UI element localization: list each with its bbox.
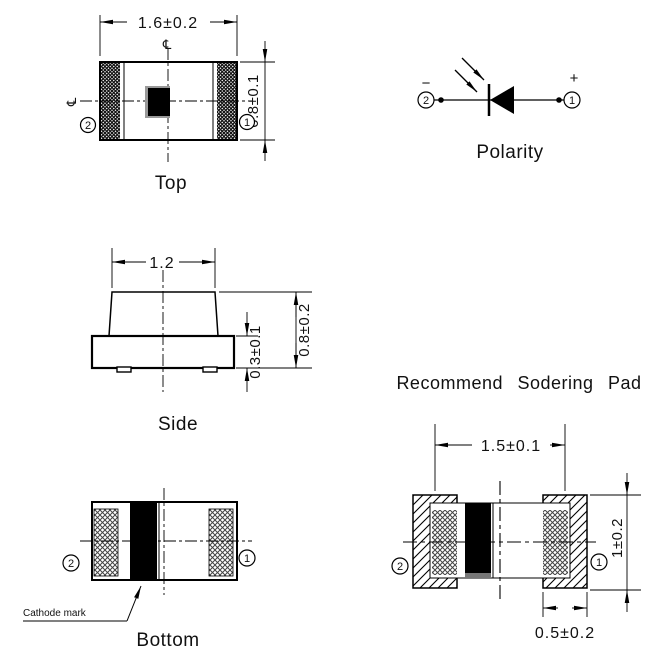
top-view: 1.6±0.2 ℄ ℄ 0.8±0.1 2 1 Top bbox=[65, 15, 275, 194]
solder-pad-title: Recommend Sodering Pad bbox=[396, 373, 641, 393]
top-height-dimension: 0.8±0.1 bbox=[240, 41, 275, 161]
solder-pad-pin1-number: 1 bbox=[596, 557, 602, 569]
cathode-mark-callout: Cathode mark bbox=[23, 586, 141, 621]
led-chip bbox=[148, 88, 170, 116]
top-view-pin2-badge: 2 bbox=[81, 118, 96, 133]
bottom-view-pin1-badge: 1 bbox=[239, 550, 255, 566]
bottom-view: 2 1 Cathode mark Bottom bbox=[23, 488, 255, 651]
diode-triangle bbox=[490, 86, 514, 114]
component-cathode-mark-strip bbox=[465, 573, 491, 578]
side-top-width-text: 1.2 bbox=[149, 255, 174, 272]
polarity-diagram: − 2 + 1 Polarity bbox=[418, 58, 580, 163]
polarity-pin1-badge: + 1 bbox=[564, 70, 580, 108]
bottom-pad-left bbox=[94, 509, 118, 576]
solder-pad-pin1-badge: 1 bbox=[591, 554, 607, 570]
polarity-pin1-number: 1 bbox=[569, 95, 575, 107]
side-view: 1.2 0.3±0.1 0.8±0.2 Side bbox=[92, 248, 313, 435]
light-emission-arrows bbox=[455, 58, 484, 92]
side-view-label: Side bbox=[158, 414, 198, 435]
polarity-pin2-badge: − 2 bbox=[418, 75, 434, 108]
bottom-view-label: Bottom bbox=[136, 630, 199, 651]
solder-pad-pin2-badge: 2 bbox=[392, 558, 408, 574]
pad-pitch-dim-text: 1.5±0.1 bbox=[481, 438, 541, 455]
side-overall-height-text: 0.8±0.2 bbox=[296, 303, 313, 356]
polarity-label: Polarity bbox=[476, 142, 543, 163]
bottom-view-pin2-badge: 2 bbox=[63, 555, 79, 571]
top-view-pin1-badge: 1 bbox=[240, 115, 255, 130]
solder-pad-pin2-number: 2 bbox=[397, 561, 403, 573]
bottom-pin1-number: 1 bbox=[244, 553, 250, 565]
cathode-mark-note: Cathode mark bbox=[23, 608, 87, 619]
pad-width-dimension: 0.5±0.2 bbox=[535, 592, 595, 642]
led-mechanical-drawing: 1.6±0.2 ℄ ℄ 0.8±0.1 2 1 Top bbox=[0, 0, 670, 662]
side-base-thickness-text: 0.3±0.1 bbox=[247, 325, 264, 378]
side-top-width-dimension: 1.2 bbox=[112, 248, 215, 288]
negative-sign: − bbox=[422, 75, 431, 92]
wire-dot-right bbox=[556, 97, 562, 103]
top-pin2-number: 2 bbox=[85, 120, 91, 132]
pad-width-dim-text: 0.5±0.2 bbox=[535, 625, 595, 642]
centerline-symbol-left: ℄ bbox=[65, 97, 80, 107]
solder-pad-view: Recommend Sodering Pad 1.5±0.1 bbox=[392, 373, 642, 642]
bottom-pin2-number: 2 bbox=[68, 558, 74, 570]
positive-sign: + bbox=[570, 70, 579, 87]
component-cathode-mark bbox=[465, 503, 491, 578]
centerline-symbol-top: ℄ bbox=[162, 38, 172, 53]
side-view-lens bbox=[109, 292, 218, 336]
pad-height-dim-text: 1±0.2 bbox=[609, 518, 626, 558]
wire-dot-left bbox=[438, 97, 444, 103]
drawing-canvas: 1.6±0.2 ℄ ℄ 0.8±0.1 2 1 Top bbox=[0, 0, 670, 662]
top-width-dim-text: 1.6±0.2 bbox=[138, 15, 198, 32]
top-pin1-number: 1 bbox=[244, 117, 250, 129]
pad-pitch-dimension: 1.5±0.1 bbox=[435, 424, 565, 491]
polarity-pin2-number: 2 bbox=[423, 95, 429, 107]
top-view-label: Top bbox=[155, 173, 187, 194]
pad-height-dimension: 1±0.2 bbox=[590, 473, 641, 612]
bottom-pad-right bbox=[209, 509, 233, 576]
